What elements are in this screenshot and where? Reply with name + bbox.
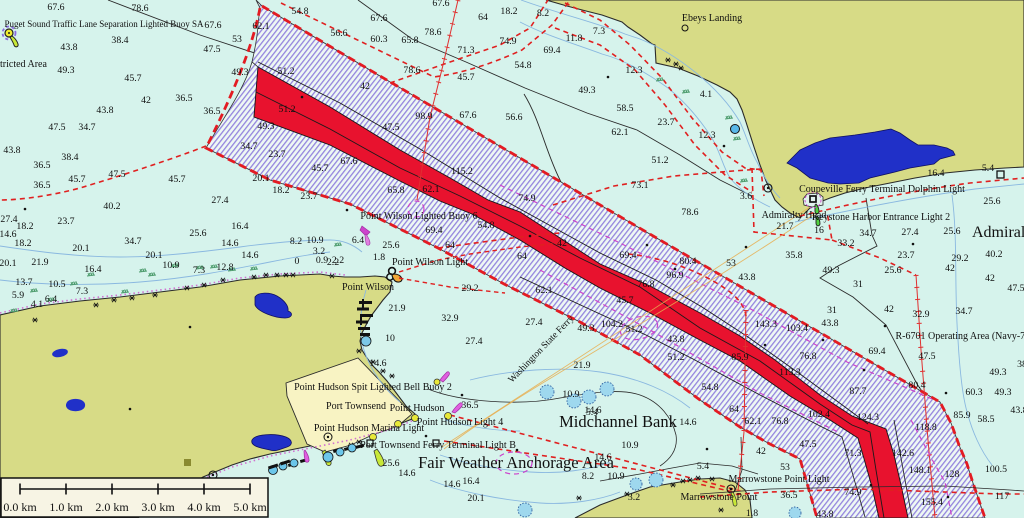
svg-text:27.4: 27.4 — [0, 214, 17, 225]
svg-text:16: 16 — [814, 225, 824, 236]
svg-text:0: 0 — [295, 256, 300, 267]
svg-text:Point Hudson Marina Light: Point Hudson Marina Light — [314, 423, 424, 434]
svg-text:36.5: 36.5 — [33, 180, 50, 191]
svg-text:34.7: 34.7 — [859, 228, 876, 239]
svg-text:Point Hudson Spit Lighted Bell: Point Hudson Spit Lighted Bell Buoy 2 — [294, 382, 452, 393]
svg-text:103.4: 103.4 — [786, 323, 808, 334]
svg-text:10.9: 10.9 — [607, 471, 624, 482]
svg-text:74.9: 74.9 — [518, 193, 535, 204]
svg-text:R-6701 Operating Area (Navy-7): R-6701 Operating Area (Navy-7) — [895, 331, 1024, 342]
svg-text:20.1: 20.1 — [252, 173, 269, 184]
svg-text:21.9: 21.9 — [31, 257, 48, 268]
svg-text:67.6: 67.6 — [47, 2, 64, 13]
svg-text:5.9: 5.9 — [12, 290, 24, 301]
svg-text:6.4: 6.4 — [352, 235, 364, 246]
svg-text:78.6: 78.6 — [403, 65, 420, 76]
svg-text:32.9: 32.9 — [912, 309, 929, 320]
svg-text:45.7: 45.7 — [457, 72, 474, 83]
svg-text:4.0 km: 4.0 km — [187, 500, 221, 514]
svg-text:98.9: 98.9 — [415, 111, 432, 122]
svg-text:49.3: 49.3 — [57, 65, 74, 76]
svg-text:85.9: 85.9 — [953, 410, 970, 421]
svg-text:71.3: 71.3 — [844, 448, 861, 459]
svg-text:10: 10 — [385, 333, 395, 344]
svg-text:23.7: 23.7 — [300, 191, 317, 202]
svg-text:20.1: 20.1 — [0, 258, 17, 269]
svg-text:8.2: 8.2 — [290, 236, 302, 247]
svg-text:78.6: 78.6 — [681, 207, 698, 218]
svg-text:1.8: 1.8 — [373, 252, 385, 263]
svg-text:43.8: 43.8 — [738, 272, 755, 283]
svg-text:49.3: 49.3 — [822, 265, 839, 276]
svg-text:21.9: 21.9 — [388, 303, 405, 314]
svg-text:14.6: 14.6 — [398, 468, 415, 479]
svg-text:Ebeys Landing: Ebeys Landing — [682, 13, 742, 24]
svg-text:Marrowstone Point Light: Marrowstone Point Light — [728, 474, 829, 485]
svg-text:71.3: 71.3 — [457, 45, 474, 56]
svg-text:45.7: 45.7 — [68, 174, 85, 185]
svg-text:32.9: 32.9 — [441, 313, 458, 324]
svg-text:54.8: 54.8 — [514, 60, 531, 71]
svg-text:31: 31 — [853, 279, 863, 290]
svg-text:148.1: 148.1 — [909, 465, 931, 476]
svg-text:10.9: 10.9 — [562, 389, 579, 400]
svg-text:69.4: 69.4 — [543, 45, 560, 56]
svg-text:49.3: 49.3 — [577, 323, 594, 334]
svg-text:47.5: 47.5 — [382, 122, 399, 133]
svg-text:56.6: 56.6 — [330, 28, 347, 39]
svg-text:31: 31 — [827, 305, 837, 316]
svg-text:45.7: 45.7 — [311, 163, 328, 174]
svg-text:12.3: 12.3 — [625, 65, 642, 76]
svg-text:87.7: 87.7 — [849, 386, 866, 397]
svg-text:34.7: 34.7 — [955, 306, 972, 317]
svg-text:36.5: 36.5 — [461, 400, 478, 411]
svg-text:18.2: 18.2 — [500, 6, 517, 17]
svg-text:43.8: 43.8 — [60, 42, 77, 53]
svg-text:5.4: 5.4 — [982, 163, 994, 174]
svg-text:51.2: 51.2 — [277, 66, 294, 77]
svg-text:64: 64 — [445, 240, 455, 251]
svg-text:2.0 km: 2.0 km — [95, 500, 129, 514]
svg-text:42: 42 — [557, 238, 567, 249]
svg-text:Point Wilson Light: Point Wilson Light — [392, 257, 468, 268]
svg-text:21.7: 21.7 — [776, 221, 793, 232]
svg-text:34.7: 34.7 — [240, 141, 257, 152]
svg-text:16.4: 16.4 — [231, 221, 248, 232]
svg-text:27.4: 27.4 — [901, 227, 918, 238]
svg-text:58.5: 58.5 — [616, 103, 633, 114]
svg-text:47.5: 47.5 — [203, 44, 220, 55]
svg-text:115.2: 115.2 — [451, 166, 473, 177]
svg-text:58.5: 58.5 — [977, 414, 994, 425]
svg-text:80.4: 80.4 — [679, 256, 696, 267]
svg-text:45.7: 45.7 — [124, 73, 141, 84]
svg-text:Point Wilson Lighted Buoy 6: Point Wilson Lighted Buoy 6 — [360, 211, 477, 222]
svg-text:65.8: 65.8 — [387, 185, 404, 196]
svg-text:49.3: 49.3 — [989, 367, 1006, 378]
svg-text:73.1: 73.1 — [631, 180, 648, 191]
svg-text:49.3: 49.3 — [231, 67, 248, 78]
svg-text:67.6: 67.6 — [432, 0, 449, 9]
svg-text:42: 42 — [360, 81, 370, 92]
svg-text:Coupeville Ferry Terminal Dolp: Coupeville Ferry Terminal Dolphin Light — [799, 184, 965, 195]
svg-text:25.6: 25.6 — [983, 196, 1000, 207]
svg-text:23.7: 23.7 — [897, 250, 914, 261]
svg-text:38.4: 38.4 — [61, 152, 78, 163]
svg-text:5.4: 5.4 — [697, 461, 709, 472]
svg-text:11.8: 11.8 — [566, 33, 583, 44]
svg-text:143.3: 143.3 — [755, 319, 777, 330]
svg-text:42: 42 — [985, 273, 995, 284]
svg-text:27.4: 27.4 — [211, 195, 228, 206]
svg-text:42: 42 — [756, 446, 766, 457]
svg-text:7.3: 7.3 — [193, 265, 205, 276]
svg-text:124.3: 124.3 — [857, 412, 879, 423]
svg-text:20.1: 20.1 — [72, 243, 89, 254]
svg-text:51.2: 51.2 — [278, 104, 295, 115]
svg-text:54.8: 54.8 — [477, 220, 494, 231]
svg-text:49.3: 49.3 — [994, 387, 1011, 398]
svg-text:64: 64 — [729, 404, 739, 415]
svg-text:64: 64 — [478, 12, 488, 23]
svg-text:118.8: 118.8 — [915, 422, 937, 433]
svg-text:62.1: 62.1 — [422, 184, 439, 195]
svg-text:47.5: 47.5 — [1007, 283, 1024, 294]
svg-text:51.2: 51.2 — [625, 324, 642, 335]
svg-text:18.2: 18.2 — [16, 221, 33, 232]
svg-text:8.2: 8.2 — [582, 471, 594, 482]
svg-text:27.4: 27.4 — [465, 336, 482, 347]
svg-text:33.2: 33.2 — [837, 238, 854, 249]
svg-text:25.6: 25.6 — [189, 228, 206, 239]
svg-text:62.1: 62.1 — [744, 416, 761, 427]
svg-text:Point Hudson: Point Hudson — [390, 403, 445, 414]
svg-text:45.7: 45.7 — [616, 295, 633, 306]
svg-text:Marrowstone Point: Marrowstone Point — [681, 492, 758, 503]
svg-text:100.5: 100.5 — [985, 464, 1007, 475]
svg-text:65.8: 65.8 — [401, 35, 418, 46]
svg-text:3.2: 3.2 — [628, 492, 640, 503]
svg-text:80.4: 80.4 — [908, 380, 925, 391]
svg-text:Admiralty Inlet: Admiralty Inlet — [972, 224, 1024, 241]
svg-text:23.7: 23.7 — [268, 149, 285, 160]
svg-text:49.3: 49.3 — [257, 121, 274, 132]
svg-text:tricted Area: tricted Area — [0, 59, 47, 70]
svg-text:43.8: 43.8 — [1010, 405, 1024, 416]
svg-text:54.8: 54.8 — [291, 6, 308, 17]
svg-text:16.4: 16.4 — [927, 168, 944, 179]
svg-text:62.1: 62.1 — [535, 285, 552, 296]
svg-text:78.6: 78.6 — [424, 27, 441, 38]
svg-text:14.6: 14.6 — [443, 479, 460, 490]
svg-text:49.3: 49.3 — [578, 85, 595, 96]
svg-text:45.7: 45.7 — [168, 174, 185, 185]
svg-text:16.4: 16.4 — [462, 476, 479, 487]
svg-text:7.3: 7.3 — [76, 286, 88, 297]
svg-text:6.4: 6.4 — [45, 294, 57, 305]
svg-text:142.6: 142.6 — [892, 448, 914, 459]
svg-text:38.4: 38.4 — [111, 35, 128, 46]
svg-text:Point Hudson Light 4: Point Hudson Light 4 — [417, 417, 503, 428]
svg-text:29.2: 29.2 — [461, 283, 478, 294]
svg-text:76.8: 76.8 — [771, 416, 788, 427]
svg-text:78.6: 78.6 — [131, 3, 148, 14]
svg-text:43.8: 43.8 — [667, 334, 684, 345]
svg-text:4.1: 4.1 — [31, 299, 43, 310]
svg-text:64: 64 — [517, 251, 527, 262]
svg-text:42: 42 — [141, 95, 151, 106]
svg-text:60.3: 60.3 — [370, 34, 387, 45]
svg-text:14.6: 14.6 — [221, 238, 238, 249]
svg-text:1.0 km: 1.0 km — [49, 500, 83, 514]
svg-text:4.1: 4.1 — [700, 89, 712, 100]
svg-text:67.6: 67.6 — [340, 156, 357, 167]
svg-text:47.5: 47.5 — [799, 439, 816, 450]
svg-text:13.7: 13.7 — [15, 277, 32, 288]
svg-text:74.9: 74.9 — [844, 487, 861, 498]
svg-text:25.6: 25.6 — [382, 458, 399, 469]
svg-text:35.8: 35.8 — [785, 250, 802, 261]
svg-text:96.9: 96.9 — [666, 270, 683, 281]
svg-text:20.1: 20.1 — [145, 250, 162, 261]
svg-text:25.6: 25.6 — [382, 240, 399, 251]
svg-text:43.8: 43.8 — [821, 318, 838, 329]
svg-text:69.4: 69.4 — [425, 225, 442, 236]
svg-text:27.4: 27.4 — [525, 317, 542, 328]
svg-text:113.3: 113.3 — [779, 367, 801, 378]
svg-text:Keystone Harbor Entrance Light: Keystone Harbor Entrance Light 2 — [812, 212, 950, 223]
svg-text:36.5: 36.5 — [780, 490, 797, 501]
svg-text:67.6: 67.6 — [204, 20, 221, 31]
svg-text:Midchannel Bank: Midchannel Bank — [559, 412, 678, 431]
svg-text:10.9: 10.9 — [306, 235, 323, 246]
svg-text:34.7: 34.7 — [124, 236, 141, 247]
svg-text:74.9: 74.9 — [499, 36, 516, 47]
svg-text:34.7: 34.7 — [78, 122, 95, 133]
svg-text:51.2: 51.2 — [667, 352, 684, 363]
svg-text:42: 42 — [945, 263, 955, 274]
svg-text:102.4: 102.4 — [808, 409, 830, 420]
svg-text:76.8: 76.8 — [637, 279, 654, 290]
svg-text:3.0 km: 3.0 km — [141, 500, 175, 514]
svg-text:47.5: 47.5 — [918, 351, 935, 362]
svg-text:51.2: 51.2 — [651, 155, 668, 166]
svg-text:1.8: 1.8 — [746, 508, 758, 518]
svg-text:Puget Sound Traffic Lane Separ: Puget Sound Traffic Lane Separation Ligh… — [4, 19, 204, 29]
svg-text:47.5: 47.5 — [48, 122, 65, 133]
svg-text:10.9: 10.9 — [621, 440, 638, 451]
svg-text:7.3: 7.3 — [593, 26, 605, 37]
svg-text:10.9: 10.9 — [162, 260, 179, 271]
svg-text:5.0 km: 5.0 km — [233, 500, 267, 514]
svg-text:Port Townsend Ferry Terminal L: Port Townsend Ferry Terminal Light B — [360, 440, 516, 451]
svg-text:69.4: 69.4 — [619, 250, 636, 261]
svg-text:20.1: 20.1 — [467, 493, 484, 504]
svg-text:Point Wilson: Point Wilson — [342, 282, 394, 293]
svg-text:10.5: 10.5 — [48, 279, 65, 290]
svg-text:53: 53 — [780, 462, 790, 473]
svg-text:85.9: 85.9 — [731, 352, 748, 363]
svg-text:42: 42 — [884, 304, 894, 315]
svg-text:23.7: 23.7 — [57, 216, 74, 227]
svg-text:12.3: 12.3 — [698, 130, 715, 141]
svg-text:117: 117 — [995, 491, 1009, 502]
svg-text:2.2: 2.2 — [327, 257, 339, 268]
svg-text:8.2: 8.2 — [537, 8, 549, 19]
svg-text:76.8: 76.8 — [799, 351, 816, 362]
svg-text:14.6: 14.6 — [679, 417, 696, 428]
svg-text:14.6: 14.6 — [369, 358, 386, 369]
svg-text:Port Townsend: Port Townsend — [326, 401, 386, 412]
svg-text:155.4: 155.4 — [921, 497, 943, 508]
svg-text:3.6: 3.6 — [740, 191, 752, 202]
svg-text:43.8: 43.8 — [3, 145, 20, 156]
svg-text:54.8: 54.8 — [701, 382, 718, 393]
svg-text:36.5: 36.5 — [33, 160, 50, 171]
svg-text:14.6: 14.6 — [241, 250, 258, 261]
svg-text:Fair Weather Anchorage Area: Fair Weather Anchorage Area — [418, 453, 615, 472]
svg-text:104.2: 104.2 — [601, 319, 623, 330]
svg-text:47.5: 47.5 — [108, 169, 125, 180]
svg-text:23.7: 23.7 — [657, 117, 674, 128]
svg-text:60.3: 60.3 — [965, 387, 982, 398]
svg-text:43.8: 43.8 — [816, 509, 833, 518]
svg-text:53: 53 — [726, 258, 736, 269]
svg-text:21.9: 21.9 — [573, 360, 590, 371]
svg-text:43.8: 43.8 — [96, 105, 113, 116]
svg-text:69.4: 69.4 — [868, 346, 885, 357]
svg-text:18.2: 18.2 — [272, 185, 289, 196]
svg-text:38: 38 — [1017, 359, 1024, 370]
svg-text:67.6: 67.6 — [459, 110, 476, 121]
svg-text:40.2: 40.2 — [985, 249, 1002, 260]
svg-text:25.6: 25.6 — [943, 226, 960, 237]
svg-text:36.5: 36.5 — [203, 106, 220, 117]
svg-text:128: 128 — [945, 469, 960, 480]
svg-text:53: 53 — [232, 34, 242, 45]
svg-text:18.2: 18.2 — [14, 238, 31, 249]
svg-text:62.1: 62.1 — [611, 127, 628, 138]
svg-text:12.8: 12.8 — [216, 262, 233, 273]
svg-text:36.5: 36.5 — [175, 93, 192, 104]
svg-text:40.2: 40.2 — [103, 201, 120, 212]
svg-text:62.1: 62.1 — [252, 21, 269, 32]
svg-text:25.6: 25.6 — [884, 265, 901, 276]
svg-text:0.0 km: 0.0 km — [3, 500, 37, 514]
svg-text:16.4: 16.4 — [84, 264, 101, 275]
svg-text:67.6: 67.6 — [370, 13, 387, 24]
svg-text:56.6: 56.6 — [505, 112, 522, 123]
